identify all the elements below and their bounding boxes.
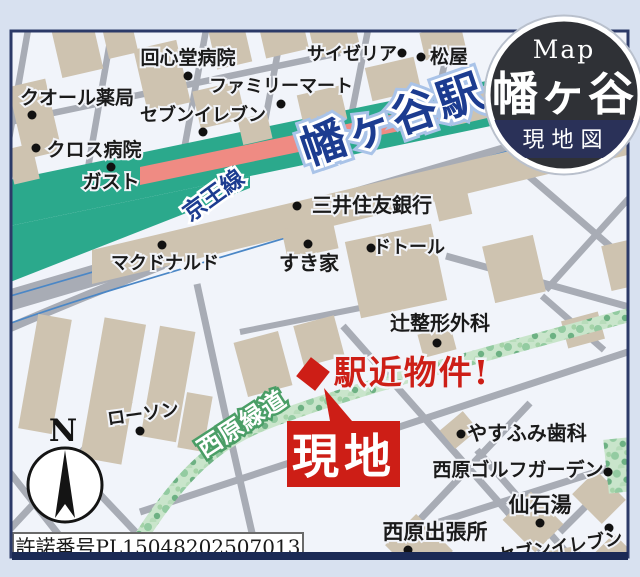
- poi-label: すき家: [279, 251, 340, 275]
- poi-dot: [304, 240, 313, 249]
- poi-dot: [32, 144, 41, 153]
- site-label: 現地: [292, 430, 396, 485]
- poi-label: サイゼリア: [307, 43, 397, 65]
- poi-label: セブンイレブン: [140, 104, 266, 126]
- poi-label: 松屋: [430, 45, 468, 68]
- poi-dot: [457, 430, 466, 439]
- poi-label: 西原ゴルフガーデン: [432, 458, 603, 481]
- poi-label: 仙石湯: [509, 492, 572, 517]
- golf-garden-green: [603, 436, 640, 493]
- poi-dot: [199, 128, 208, 137]
- badge-ribbon-label: 現地図: [522, 128, 609, 153]
- poi-label: ガスト: [82, 171, 139, 193]
- poi-dot: [536, 519, 545, 528]
- poi-dot: [293, 202, 302, 211]
- poi-dot: [136, 427, 145, 436]
- poi-dot: [277, 100, 286, 109]
- poi-dot: [604, 468, 613, 477]
- poi-label: 回心堂病院: [140, 46, 235, 69]
- poi-dot: [398, 49, 407, 58]
- poi-label: クオール薬局: [20, 86, 134, 109]
- poi-label: マクドナルド: [111, 253, 219, 274]
- poi-label: 西原出張所: [383, 519, 488, 544]
- poi-dot: [158, 241, 167, 250]
- poi-dot: [433, 339, 442, 348]
- poi-label: やすふみ歯科: [467, 421, 587, 445]
- location-map: 京王線 幡ヶ谷駅 幡ヶ谷駅 西原緑道 回心堂: [0, 0, 640, 577]
- poi-label: 辻整形外科: [390, 311, 490, 335]
- poi-label: ファミリーマート: [209, 76, 353, 97]
- site-catchphrase: 駅近物件!: [334, 353, 491, 392]
- badge-title: 幡ヶ谷: [492, 67, 636, 121]
- poi-dot: [184, 72, 193, 81]
- badge-subtitle: Map: [533, 35, 596, 64]
- poi-label: ドトール: [373, 237, 445, 258]
- poi-dot: [28, 111, 37, 120]
- poi-label: 三井住友銀行: [312, 193, 432, 217]
- map-frame-bottom-band: [12, 552, 628, 560]
- poi-dot: [417, 53, 426, 62]
- compass-north-label: N: [49, 413, 77, 449]
- map-canvas: 京王線 幡ヶ谷駅 幡ヶ谷駅 西原緑道 回心堂: [0, 0, 640, 577]
- map-badge: Map 幡ヶ谷 現地図: [485, 16, 640, 175]
- poi-label: クロス病院: [46, 138, 141, 161]
